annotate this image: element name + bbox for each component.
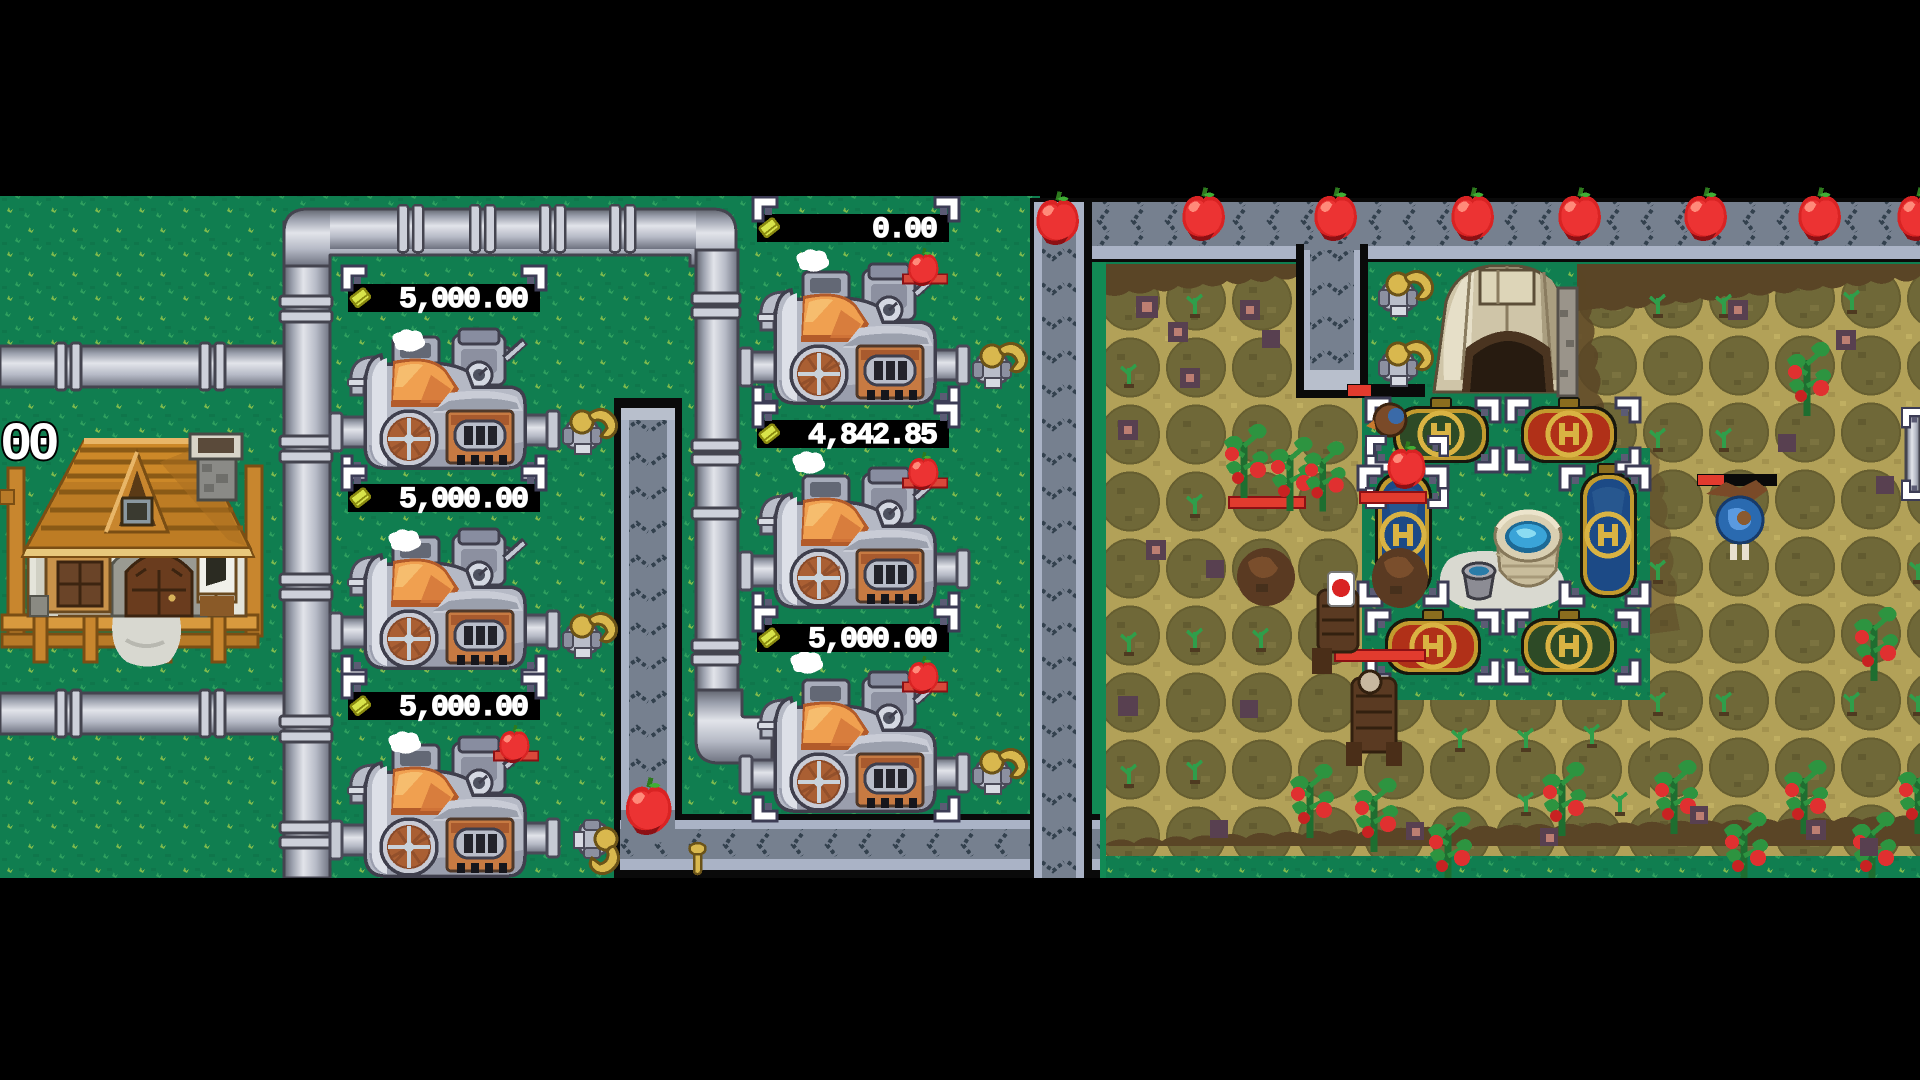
svg-text:0.00: 0.00 [872,213,937,247]
svg-text:5,000.00: 5,000.00 [808,623,937,657]
svg-text:4,842.85: 4,842.85 [808,419,937,453]
svg-text:5,000.00: 5,000.00 [399,691,528,725]
svg-text:5,000.00: 5,000.00 [399,483,528,517]
svg-text:00: 00 [0,415,57,476]
svg-text:5,000.00: 5,000.00 [399,283,528,317]
